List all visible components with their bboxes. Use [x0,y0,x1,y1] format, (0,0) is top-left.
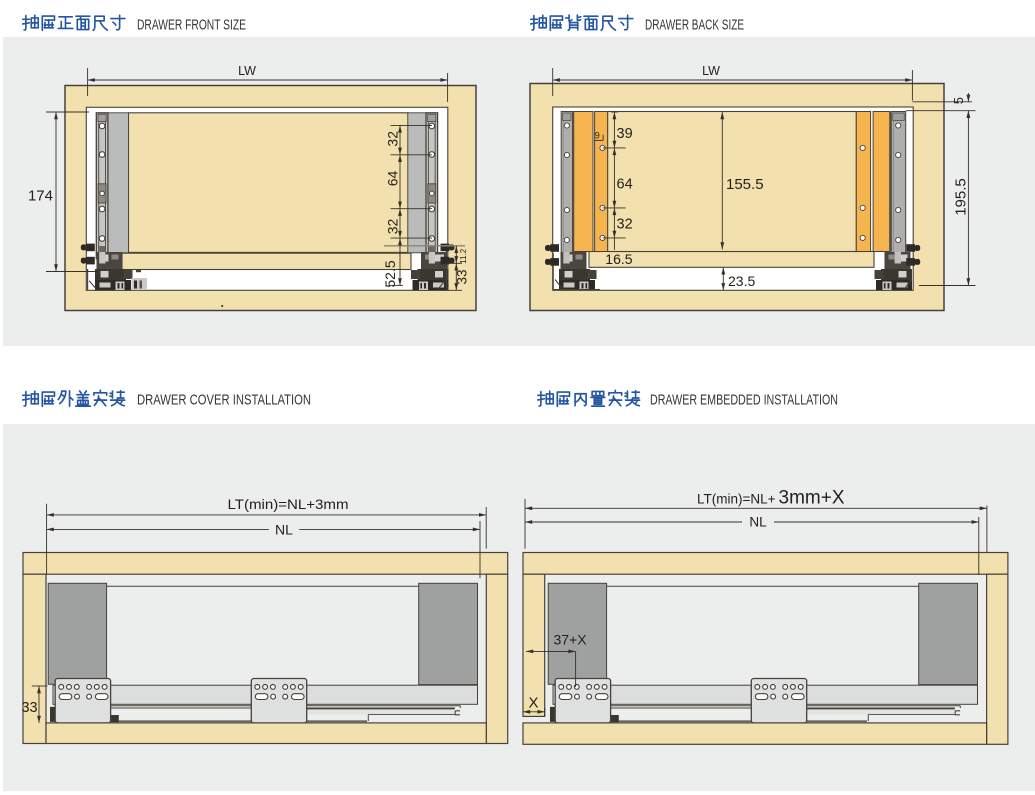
svg-text:5: 5 [951,97,966,104]
svg-text:LT(min)=NL+3mm+X: LT(min)=NL+3mm+X [697,487,845,508]
svg-text:DRAWER BACK SIZE: DRAWER BACK SIZE [645,17,744,34]
svg-text:DRAWER FRONT SIZE: DRAWER FRONT SIZE [137,17,246,34]
svg-text:37+X: 37+X [553,632,587,648]
svg-text:X: X [528,695,538,712]
svg-text:11.2: 11.2 [459,248,468,264]
svg-text:32: 32 [385,131,401,147]
svg-text:155.5: 155.5 [726,176,764,193]
svg-text:DRAWER COVER INSTALLATION: DRAWER COVER INSTALLATION [137,392,311,409]
svg-text:23.5: 23.5 [728,273,755,289]
svg-text:33: 33 [455,269,470,284]
svg-text:DRAWER EMBEDDED INSTALLATION: DRAWER EMBEDDED INSTALLATION [650,392,838,409]
svg-text:NL: NL [749,515,767,530]
svg-text:52.5: 52.5 [382,260,398,287]
svg-text:LW: LW [702,64,720,78]
svg-text:32: 32 [385,219,401,235]
svg-text:174: 174 [28,188,53,205]
svg-text:64: 64 [385,171,401,187]
svg-text:195.5: 195.5 [953,178,970,216]
svg-text:LT(min)=NL+3mm: LT(min)=NL+3mm [228,496,349,512]
svg-text:64: 64 [617,176,633,192]
svg-text:32: 32 [617,216,633,232]
svg-text:39: 39 [617,126,633,142]
svg-text:NL: NL [275,521,293,537]
svg-text:16.5: 16.5 [605,251,632,267]
svg-text:33: 33 [21,700,37,716]
svg-text:LW: LW [238,64,256,78]
svg-text:9: 9 [595,131,600,141]
